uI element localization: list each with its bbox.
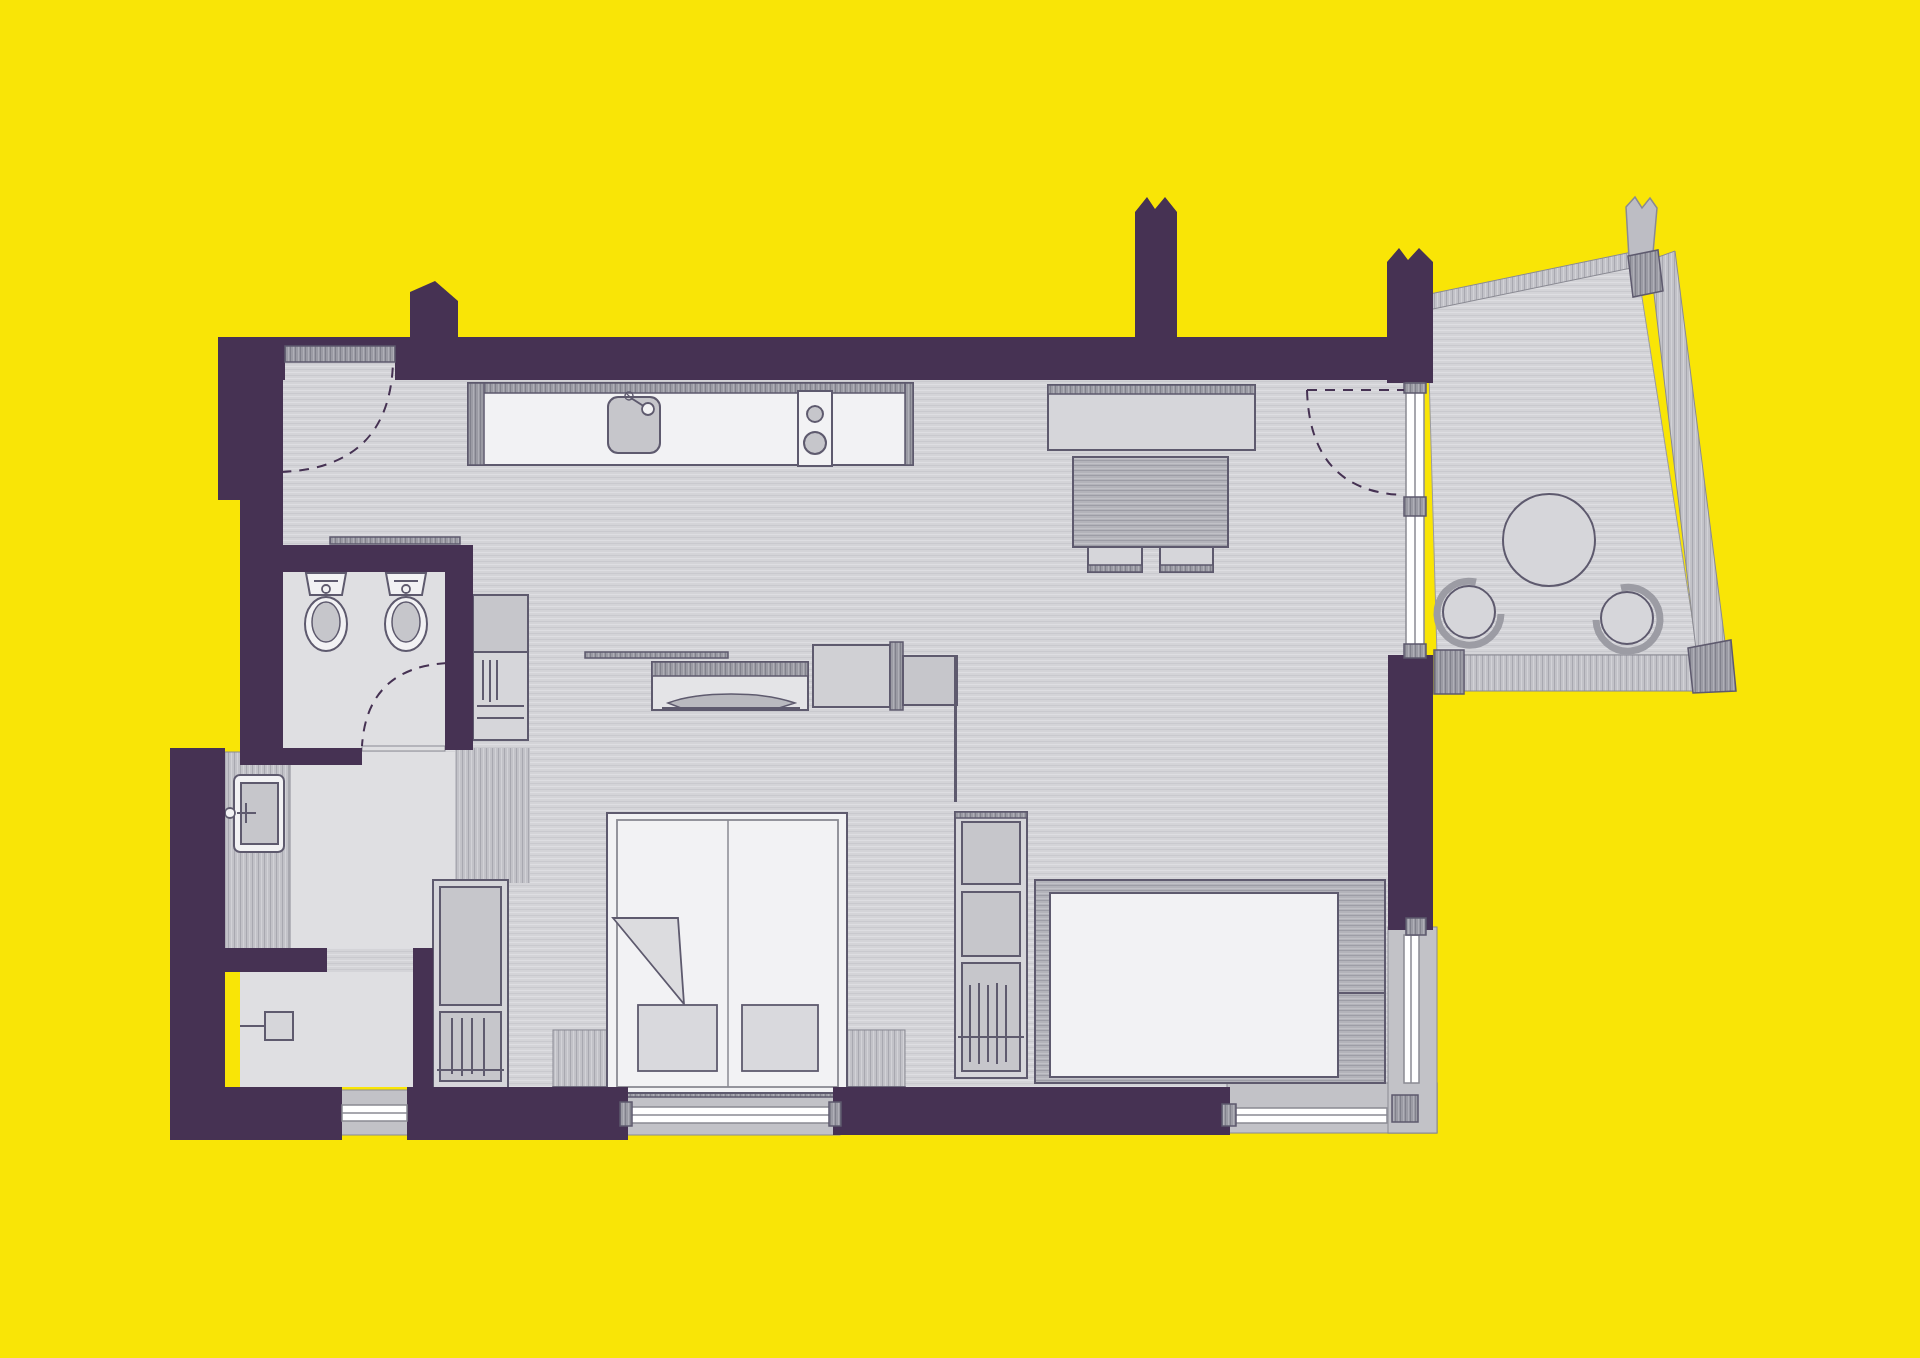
toilet [305, 573, 347, 651]
wall-corner-column-balcony [1387, 248, 1433, 383]
balcony-wall-corner-left [1434, 650, 1464, 694]
dining-table [1073, 457, 1228, 547]
sofa-daybed [1035, 880, 1385, 1083]
corridor-wood-floor [455, 748, 530, 883]
balcony-round-table [1503, 494, 1595, 586]
bathroom-wall-right [445, 545, 473, 750]
desk-top-edge [652, 662, 808, 676]
washbasin-area [225, 752, 290, 953]
burner-small [807, 406, 823, 422]
shower-wall-top [170, 948, 327, 972]
entrance-threshold [285, 346, 395, 362]
bed-bench-left [553, 1030, 607, 1087]
pillow-right [742, 1005, 818, 1071]
sofa-cushion [1050, 893, 1338, 1077]
floor-plan-drawing [0, 0, 1920, 1358]
partition-line [954, 656, 957, 802]
balcony-wall-corner-right [1688, 640, 1736, 693]
kitchen-counter [468, 383, 913, 466]
wall-shelf-strip [330, 537, 460, 544]
bathroom-wall-left [240, 545, 283, 765]
partition-wood-strip [890, 642, 903, 710]
wall-left-lower [170, 748, 225, 1090]
wall-bottom-left [170, 1087, 342, 1140]
wardrobe-right [955, 812, 1027, 1078]
entrance-lintel [285, 337, 395, 346]
wall-bottom-right [833, 1087, 1230, 1135]
bathroom-floor [283, 572, 445, 748]
burner-large [804, 432, 826, 454]
balcony-wall-bottom [1437, 655, 1703, 691]
dining-chair-right [1160, 547, 1213, 572]
dining-chair-left [1088, 547, 1142, 572]
wall-bottom-mid [407, 1087, 628, 1140]
shower-wall-right [413, 948, 433, 1090]
wall-shelf [585, 652, 728, 658]
wall-break-symbol-top [1135, 197, 1177, 340]
bathroom-wall-bottom [240, 748, 362, 765]
bathroom-door-threshold [362, 746, 445, 751]
cooktop [798, 391, 832, 466]
balcony-glazed-door [1404, 383, 1426, 658]
shower-fitting [265, 1012, 293, 1040]
partition-cabinet-left [813, 645, 890, 707]
dining-area [1048, 385, 1255, 572]
balcony-wall-break-block [1628, 250, 1663, 297]
window-living-bottom [1222, 1104, 1387, 1126]
wardrobe-right-hangers [958, 963, 1024, 1071]
window-shower [342, 1105, 407, 1121]
wall-top [395, 337, 1390, 380]
wardrobe-left [433, 880, 508, 1088]
pillow-left [638, 1005, 717, 1071]
wall-left-upper [218, 337, 283, 500]
wardrobe-left-hangers [437, 1012, 504, 1081]
tall-cabinet [473, 595, 528, 652]
hanging-closet [473, 652, 528, 740]
sideboard-top-edge [1048, 385, 1255, 394]
wall-break-symbol-balcony [1626, 197, 1657, 258]
bidet [385, 573, 427, 651]
wall-right-mid [1388, 655, 1433, 930]
partition-cabinet-right [903, 656, 957, 705]
floor-plan-canvas [0, 0, 1920, 1358]
bed-bench-right [847, 1030, 905, 1087]
